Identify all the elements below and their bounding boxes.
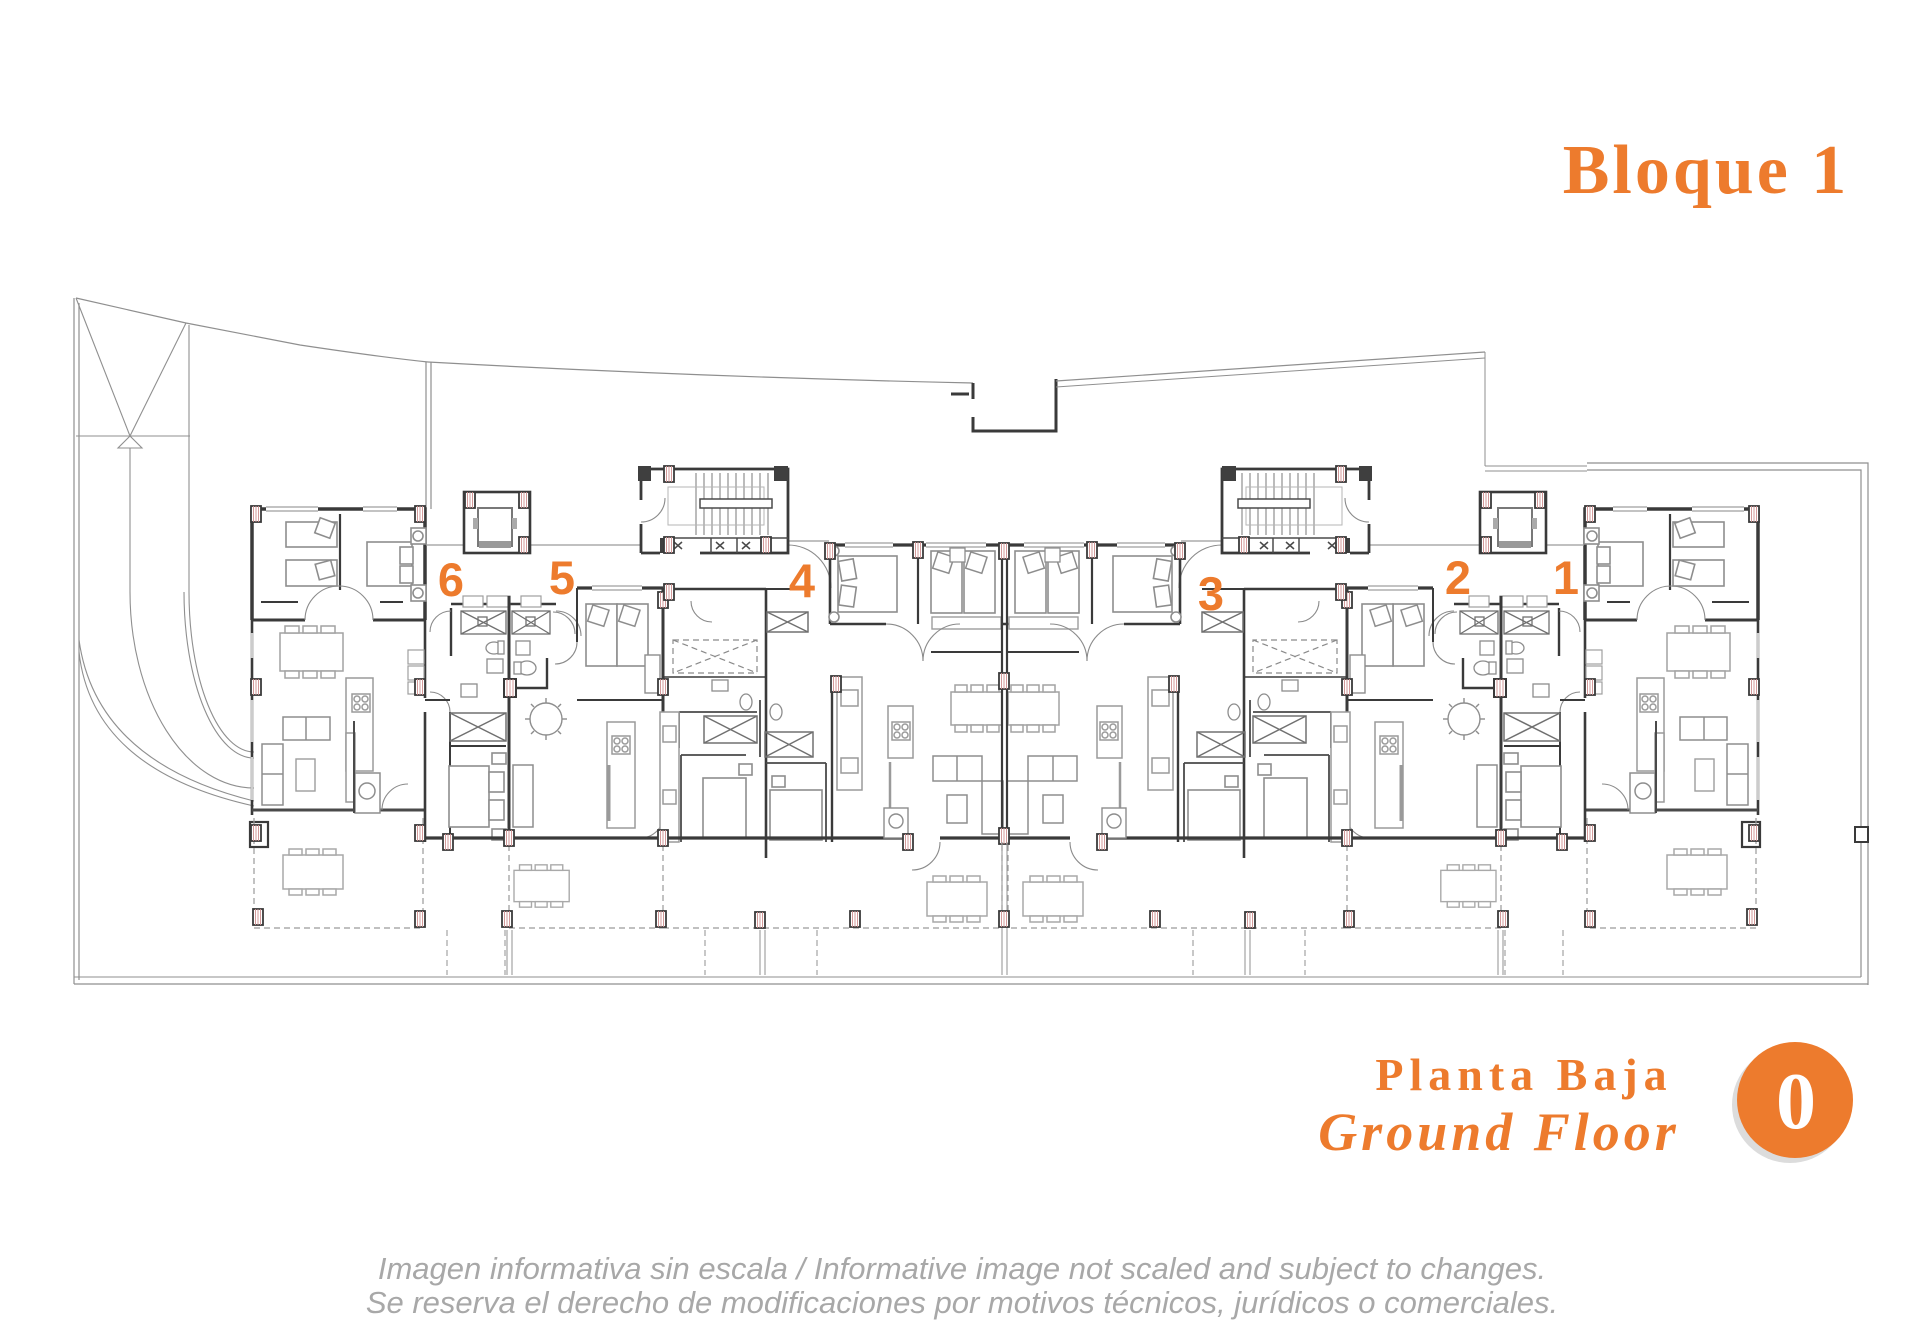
svg-text:Planta Baja: Planta Baja — [1375, 1049, 1672, 1100]
svg-text:3: 3 — [1198, 567, 1224, 620]
svg-text:Se reserva el derecho de modif: Se reserva el derecho de modificaciones … — [366, 1285, 1558, 1320]
svg-text:Ground Floor: Ground Floor — [1318, 1102, 1680, 1162]
svg-text:5: 5 — [549, 551, 575, 604]
svg-text:4: 4 — [789, 554, 815, 607]
svg-text:2: 2 — [1445, 551, 1471, 604]
svg-text:6: 6 — [438, 553, 464, 606]
svg-text:1: 1 — [1553, 551, 1579, 604]
svg-text:Imagen informativa sin escala: Imagen informativa sin escala / Informat… — [378, 1251, 1546, 1286]
svg-text:Bloque 1: Bloque 1 — [1563, 132, 1850, 209]
svg-text:0: 0 — [1776, 1058, 1816, 1146]
